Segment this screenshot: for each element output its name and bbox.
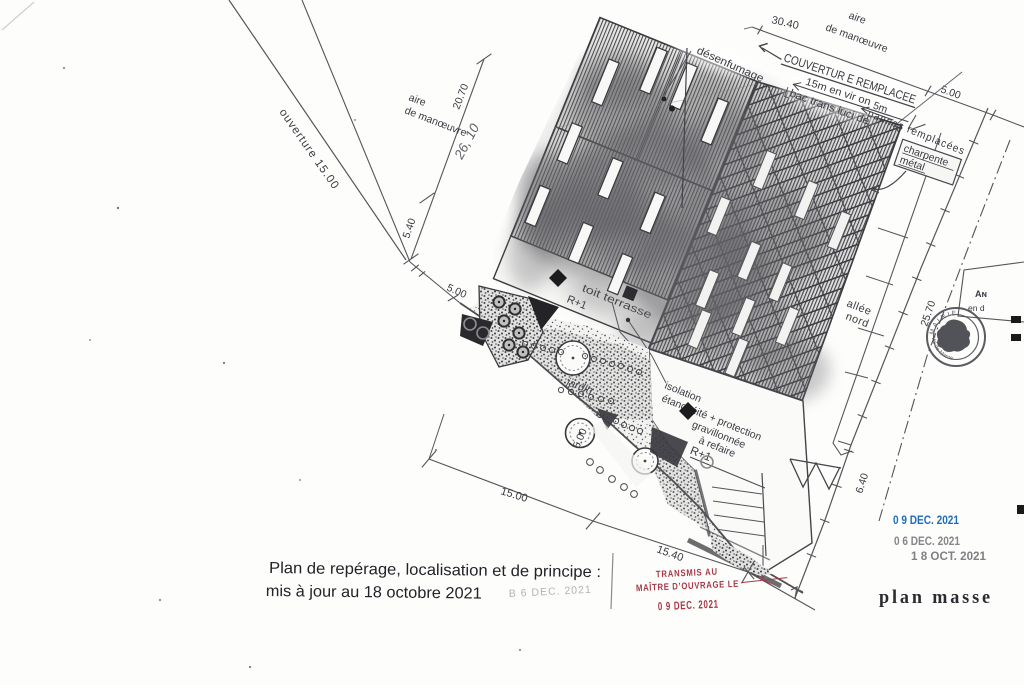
svg-text:Aɴ: Aɴ [975, 289, 987, 299]
svg-text:1 8 OCT. 2021: 1 8 OCT. 2021 [911, 551, 987, 563]
svg-text:0 9 DEC. 2021: 0 9 DEC. 2021 [893, 513, 959, 527]
svg-text:mis à jour au 18 octobre 2021: mis à jour au 18 octobre 2021 [266, 583, 482, 603]
svg-text:plan massе: plan massе [879, 587, 993, 608]
svg-text:0 6 DEC. 2021: 0 6 DEC. 2021 [894, 536, 961, 548]
